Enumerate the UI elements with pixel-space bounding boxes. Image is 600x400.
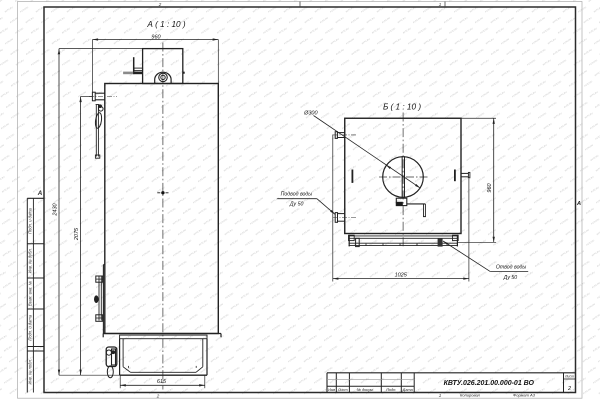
svg-text:Лист: Лист: [564, 375, 574, 379]
svg-text:А ( 1 : 10 ): А ( 1 : 10 ): [146, 20, 185, 29]
svg-text:2075: 2075: [74, 227, 80, 241]
svg-text:Подвод воды: Подвод воды: [281, 192, 313, 198]
svg-text:А: А: [37, 190, 43, 197]
svg-text:Подп. и дата: Подп. и дата: [28, 314, 33, 340]
svg-text:2: 2: [567, 386, 571, 392]
svg-text:Подп. и дата: Подп. и дата: [28, 207, 33, 233]
svg-text:Изм: Изм: [328, 388, 335, 392]
svg-text:2: 2: [156, 393, 160, 398]
svg-text:Отвод воды: Отвод воды: [496, 264, 526, 270]
svg-text:2430: 2430: [53, 202, 59, 216]
svg-text:КВТУ.026.201.00.000-01 ВО: КВТУ.026.201.00.000-01 ВО: [444, 380, 535, 387]
svg-text:№ докум.: № докум.: [357, 388, 374, 392]
svg-text:Подп.: Подп.: [386, 388, 396, 392]
svg-text:Формат А3: Формат А3: [513, 393, 536, 398]
svg-text:Лист: Лист: [337, 388, 348, 392]
svg-text:615: 615: [157, 379, 167, 385]
svg-text:Инв. № подл.: Инв. № подл.: [28, 359, 33, 384]
svg-text:А: А: [576, 201, 581, 207]
svg-text:Инв. № дубл.: Инв. № дубл.: [28, 248, 33, 273]
svg-text:960: 960: [487, 182, 493, 192]
svg-text:Б ( 1 : 10 ): Б ( 1 : 10 ): [383, 103, 421, 112]
svg-text:Взам. инв. №: Взам. инв. №: [28, 280, 33, 306]
svg-text:Дата: Дата: [402, 388, 413, 392]
svg-text:Ду 50: Ду 50: [289, 201, 304, 207]
svg-text:960: 960: [151, 34, 161, 40]
svg-text:2: 2: [158, 2, 162, 7]
svg-text:Копировал: Копировал: [460, 393, 481, 398]
svg-text:Ду 50: Ду 50: [503, 275, 518, 281]
svg-text:1025: 1025: [395, 272, 408, 278]
svg-text:Ø300: Ø300: [303, 110, 318, 116]
